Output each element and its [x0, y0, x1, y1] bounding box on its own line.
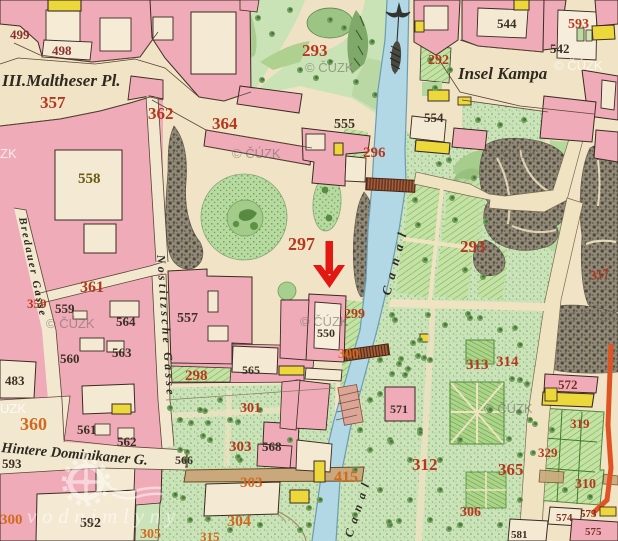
svg-text:561: 561 — [77, 422, 97, 437]
svg-text:293: 293 — [460, 237, 486, 256]
svg-text:UZK: UZK — [0, 401, 26, 416]
svg-text:559: 559 — [55, 301, 75, 316]
svg-text:300: 300 — [0, 512, 23, 528]
svg-text:555: 555 — [334, 117, 355, 132]
svg-text:574: 574 — [556, 512, 573, 524]
svg-text:305: 305 — [140, 527, 161, 541]
svg-text:Insel Kampa: Insel Kampa — [457, 64, 548, 83]
svg-text:304: 304 — [227, 513, 251, 530]
svg-text:572: 572 — [558, 377, 578, 392]
svg-text:571: 571 — [390, 402, 408, 416]
svg-text:560: 560 — [60, 351, 80, 366]
svg-text:313: 313 — [466, 357, 489, 373]
svg-text:© ČÚZK: © ČÚZK — [489, 146, 538, 161]
svg-text:303: 303 — [229, 439, 252, 455]
svg-text:581: 581 — [511, 529, 528, 541]
svg-text:© ČÚZK: © ČÚZK — [300, 314, 349, 329]
svg-text:361: 361 — [80, 279, 104, 296]
svg-text:415: 415 — [334, 469, 358, 486]
svg-text:300: 300 — [338, 347, 359, 362]
svg-text:310: 310 — [575, 477, 596, 492]
svg-text:557: 557 — [177, 311, 198, 326]
svg-text:554: 554 — [424, 110, 444, 125]
svg-text:ZK: ZK — [0, 146, 17, 161]
svg-text:© ČÚZK: © ČÚZK — [568, 309, 617, 324]
svg-text:© ČÚZK: © ČÚZK — [484, 401, 533, 416]
svg-text:498: 498 — [52, 43, 72, 58]
svg-text:293: 293 — [302, 41, 328, 60]
svg-text:565: 565 — [242, 363, 260, 377]
svg-text:365: 365 — [498, 460, 524, 479]
svg-text:315: 315 — [200, 529, 220, 541]
svg-text:306: 306 — [460, 505, 481, 520]
svg-text:292: 292 — [428, 53, 449, 68]
svg-text:303: 303 — [240, 475, 263, 491]
svg-text:364: 364 — [212, 114, 238, 133]
svg-text:© ČÚZK: © ČÚZK — [232, 146, 281, 161]
svg-text:314: 314 — [496, 354, 519, 370]
svg-text:312: 312 — [412, 455, 438, 474]
svg-text:© ČÚZK: © ČÚZK — [305, 60, 354, 75]
svg-text:566: 566 — [175, 453, 193, 467]
svg-text:568: 568 — [262, 439, 282, 454]
svg-text:vodnimlyny: vodnimlyny — [27, 504, 176, 528]
svg-text:319: 319 — [570, 416, 590, 431]
svg-text:483: 483 — [5, 373, 25, 388]
svg-text:573: 573 — [580, 508, 597, 520]
svg-text:593: 593 — [2, 456, 22, 471]
svg-text:542: 542 — [550, 41, 570, 56]
svg-text:298: 298 — [185, 368, 208, 384]
svg-text:563: 563 — [112, 345, 132, 360]
svg-text:575: 575 — [585, 526, 602, 538]
svg-text:593: 593 — [568, 17, 589, 32]
svg-text:564: 564 — [116, 314, 136, 329]
svg-text:329: 329 — [538, 445, 558, 460]
svg-text:297: 297 — [288, 234, 315, 254]
svg-text:360: 360 — [20, 414, 47, 434]
svg-text:III.Maltheser Pl.: III.Maltheser Pl. — [1, 71, 121, 90]
svg-text:© ČÚZK: © ČÚZK — [554, 58, 603, 73]
svg-text:558: 558 — [78, 171, 101, 187]
svg-text:544: 544 — [497, 16, 517, 31]
svg-text:499: 499 — [10, 27, 30, 42]
svg-text:362: 362 — [148, 104, 174, 123]
svg-text:562: 562 — [117, 434, 137, 449]
svg-text:301: 301 — [240, 401, 261, 416]
svg-text:357: 357 — [40, 93, 66, 112]
svg-text:© ČÚZK: © ČÚZK — [46, 316, 95, 331]
svg-text:296: 296 — [363, 145, 386, 161]
